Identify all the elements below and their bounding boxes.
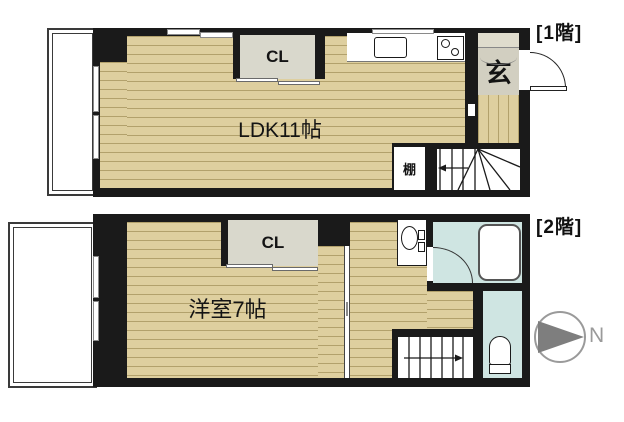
entrance-step xyxy=(478,33,519,48)
shelf: 棚 xyxy=(394,147,425,190)
sliding-door-handle xyxy=(346,302,348,316)
washbasin-counter-icon xyxy=(418,230,425,240)
floor1-closet-side-wall xyxy=(233,33,240,79)
closet-sliding-door xyxy=(226,264,273,268)
window xyxy=(167,29,200,35)
stairs-floor2 xyxy=(392,329,473,378)
floor2-closet-side-wall xyxy=(221,220,228,266)
floor1-closet: CL xyxy=(240,35,315,79)
front-door-opening xyxy=(519,50,530,90)
floor2-balcony-inner-line xyxy=(13,227,92,383)
floor1-ldk-floor-left xyxy=(100,62,127,188)
floor2-balcony xyxy=(8,222,97,388)
floor1-closet-side-wall xyxy=(315,33,325,79)
kitchen-sink-icon xyxy=(374,37,407,58)
floor2-room-floor-right xyxy=(318,246,344,378)
floor2-closet: CL xyxy=(228,220,318,266)
kitchen-stove-icon xyxy=(437,36,464,60)
washbasin-counter-icon xyxy=(418,242,425,252)
window xyxy=(93,115,99,159)
window xyxy=(93,256,99,298)
sliding-door-partition xyxy=(344,246,350,378)
window xyxy=(372,29,434,34)
closet-sliding-door xyxy=(272,267,318,271)
toilet-bowl-icon xyxy=(489,336,511,365)
stove-burner-icon xyxy=(441,39,450,48)
washbasin xyxy=(397,219,427,266)
floor1-hallway xyxy=(478,95,519,145)
floor1-room-label: LDK11帖 xyxy=(200,116,360,142)
washbasin-bowl-icon xyxy=(401,226,418,250)
window xyxy=(200,32,233,38)
floor1-balcony xyxy=(47,28,98,196)
floor2-label: [2階] xyxy=(536,212,582,239)
bathtub-icon xyxy=(478,224,521,281)
window xyxy=(93,301,99,341)
front-door-arc xyxy=(530,52,566,88)
ldk-hall-door-opening xyxy=(468,104,475,116)
floor2-room-label: 洋室7帖 xyxy=(140,294,315,322)
stove-burner-icon xyxy=(451,48,459,56)
floor1-ldk-floor-lower xyxy=(127,143,392,188)
stairs-floor1 xyxy=(425,143,520,190)
floor1-label: [1階] xyxy=(536,18,582,45)
floor1-balcony-inner-line xyxy=(52,33,93,191)
toilet-base-icon xyxy=(489,364,511,374)
compass-needle-icon xyxy=(538,321,584,353)
closet-sliding-door xyxy=(236,78,278,82)
closet-sliding-door xyxy=(278,81,320,85)
north-label: N xyxy=(589,324,604,348)
floor-plan-canvas: CL 玄 棚 LDK11帖 [1階] CL xyxy=(0,0,624,422)
front-door-leaf xyxy=(530,86,567,91)
window xyxy=(93,66,99,112)
entrance-tile-arc xyxy=(480,50,517,65)
